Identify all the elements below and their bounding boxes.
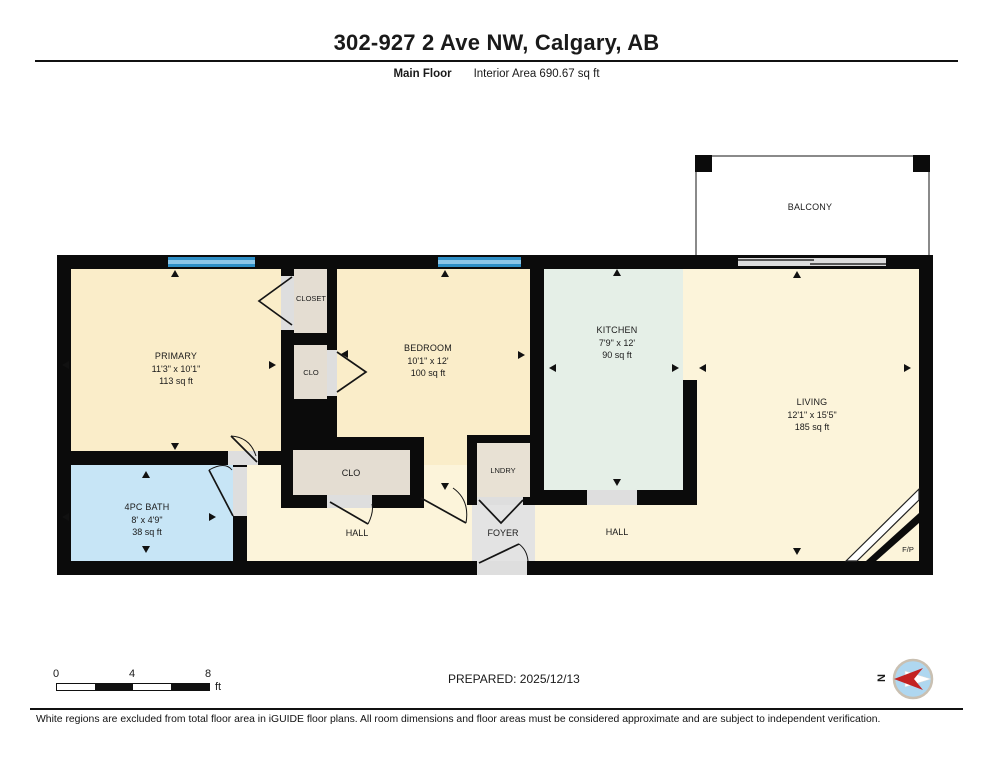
- scale-tick: 0: [50, 668, 62, 680]
- dimension-arrow-icon: [209, 513, 216, 521]
- scale-tick: 8: [202, 668, 214, 680]
- page-title: 302-927 2 Ave NW, Calgary, AB: [0, 30, 993, 56]
- title-divider: [35, 60, 958, 62]
- window-primary: [168, 257, 255, 267]
- label-foyer: FOYER: [473, 527, 533, 540]
- scale-bar: [56, 683, 210, 691]
- door-opening-clo-hall: [327, 495, 372, 508]
- floorplan-page: 302-927 2 Ave NW, Calgary, AB Main Floor…: [0, 0, 993, 768]
- door-opening-entry: [477, 561, 527, 575]
- label-kitchen: KITCHEN 7'9" x 12' 90 sq ft: [547, 324, 687, 362]
- dimension-arrow-icon: [549, 364, 556, 372]
- label-hall-right: HALL: [587, 526, 647, 539]
- balcony-post: [913, 155, 930, 172]
- room-kitchen: [544, 269, 683, 490]
- label-clo-primary: CLO: [290, 368, 332, 377]
- opening-kitchen-hall: [587, 490, 637, 505]
- interior-area-label: Interior Area 690.67 sq ft: [474, 68, 600, 80]
- label-bath: 4PC BATH 8' x 4'9" 38 sq ft: [87, 501, 207, 539]
- dimension-arrow-icon: [672, 364, 679, 372]
- dimension-arrow-icon: [142, 546, 150, 553]
- scale-tick: 4: [126, 668, 138, 680]
- sliding-door-panel: [810, 263, 886, 265]
- label-fireplace: F/P: [893, 545, 923, 554]
- footer-divider: [30, 708, 963, 710]
- prepared-date: PREPARED: 2025/12/13: [448, 672, 580, 686]
- label-primary: PRIMARY 11'3" x 10'1" 113 sq ft: [106, 350, 246, 388]
- disclaimer-text: White regions are excluded from total fl…: [36, 714, 957, 725]
- dimension-arrow-icon: [793, 548, 801, 555]
- balcony-post: [695, 155, 712, 172]
- dimension-arrow-icon: [441, 270, 449, 277]
- dimension-arrow-icon: [142, 471, 150, 478]
- label-living: LIVING 12'1" x 15'5" 185 sq ft: [742, 396, 882, 434]
- dimension-arrow-icon: [269, 361, 276, 369]
- label-laundry: LNDRY: [473, 466, 533, 475]
- floor-label: Main Floor: [393, 68, 451, 80]
- dimension-arrow-icon: [613, 479, 621, 486]
- door-opening-laundry: [477, 497, 523, 505]
- dimension-arrow-icon: [441, 483, 449, 490]
- wall: [683, 380, 697, 505]
- door-opening-primary: [228, 451, 258, 465]
- label-clo-hall: CLO: [321, 467, 381, 480]
- label-balcony: BALCONY: [740, 201, 880, 214]
- dimension-arrow-icon: [171, 270, 179, 277]
- scale-segment: [171, 684, 210, 690]
- dimension-arrow-icon: [62, 361, 69, 369]
- label-closet: CLOSET: [290, 294, 332, 303]
- dimension-arrow-icon: [793, 271, 801, 278]
- compass-icon: [894, 660, 932, 698]
- dimension-arrow-icon: [699, 364, 706, 372]
- floor-subtitle: Main FloorInterior Area 690.67 sq ft: [0, 68, 993, 80]
- door-opening-closet: [281, 276, 294, 330]
- dimension-arrow-icon: [171, 443, 179, 450]
- label-bedroom: BEDROOM 10'1" x 12' 100 sq ft: [358, 342, 498, 380]
- dimension-arrow-icon: [904, 364, 911, 372]
- wall: [57, 451, 294, 465]
- wall: [530, 269, 544, 490]
- dimension-arrow-icon: [341, 350, 348, 358]
- dimension-arrow-icon: [518, 351, 525, 359]
- scale-unit: ft: [215, 681, 221, 693]
- wall: [294, 333, 327, 345]
- scale-segment: [95, 684, 134, 690]
- label-hall-left: HALL: [327, 527, 387, 540]
- compass-north-label: N: [876, 674, 888, 682]
- door-opening-bath: [233, 467, 247, 516]
- dimension-arrow-icon: [62, 513, 69, 521]
- window-bedroom: [438, 257, 521, 267]
- dimension-arrow-icon: [613, 269, 621, 276]
- sliding-door-panel: [738, 259, 814, 261]
